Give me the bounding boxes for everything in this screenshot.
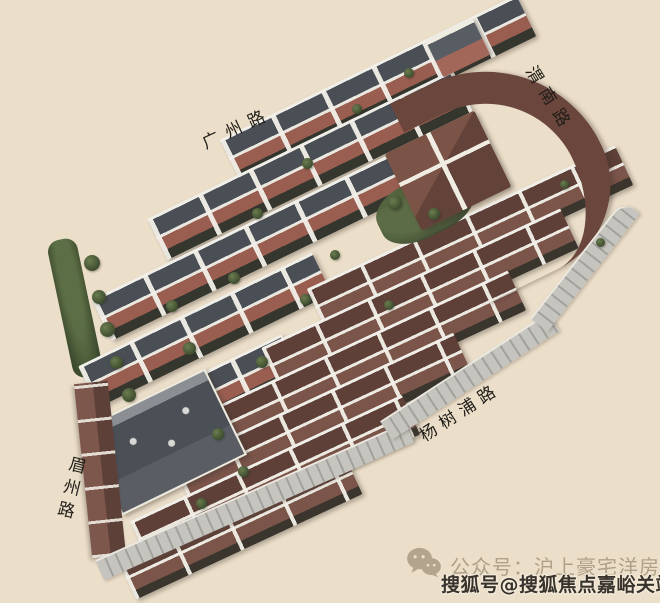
tree — [330, 250, 340, 260]
tree — [256, 356, 268, 368]
tree — [352, 104, 362, 114]
tree — [196, 498, 207, 509]
tree — [302, 158, 313, 169]
aerial-site-render: 广州路 渭南路 杨树浦路 眉州路 公众号：沪上豪宅洋房 搜狐号@搜狐焦点嘉峪关站 — [0, 0, 660, 603]
tree — [404, 68, 414, 78]
tree — [596, 238, 605, 247]
tree — [228, 272, 240, 284]
tree — [212, 428, 224, 440]
tree — [100, 322, 115, 337]
tree — [110, 356, 123, 369]
tree — [388, 196, 402, 210]
wechat-icon — [406, 547, 442, 584]
tree — [122, 388, 136, 402]
tree — [183, 342, 196, 355]
tree — [84, 255, 100, 271]
tree — [252, 208, 263, 219]
tree — [560, 180, 569, 189]
watermark-sohu: 搜狐号@搜狐焦点嘉峪关站 — [441, 570, 660, 597]
tree — [238, 466, 249, 477]
tree — [92, 290, 106, 304]
tree — [384, 300, 394, 310]
tree — [428, 208, 440, 220]
tree — [300, 294, 311, 305]
tree — [166, 300, 178, 312]
road-label-meizhou-road: 眉州路 — [49, 453, 90, 526]
